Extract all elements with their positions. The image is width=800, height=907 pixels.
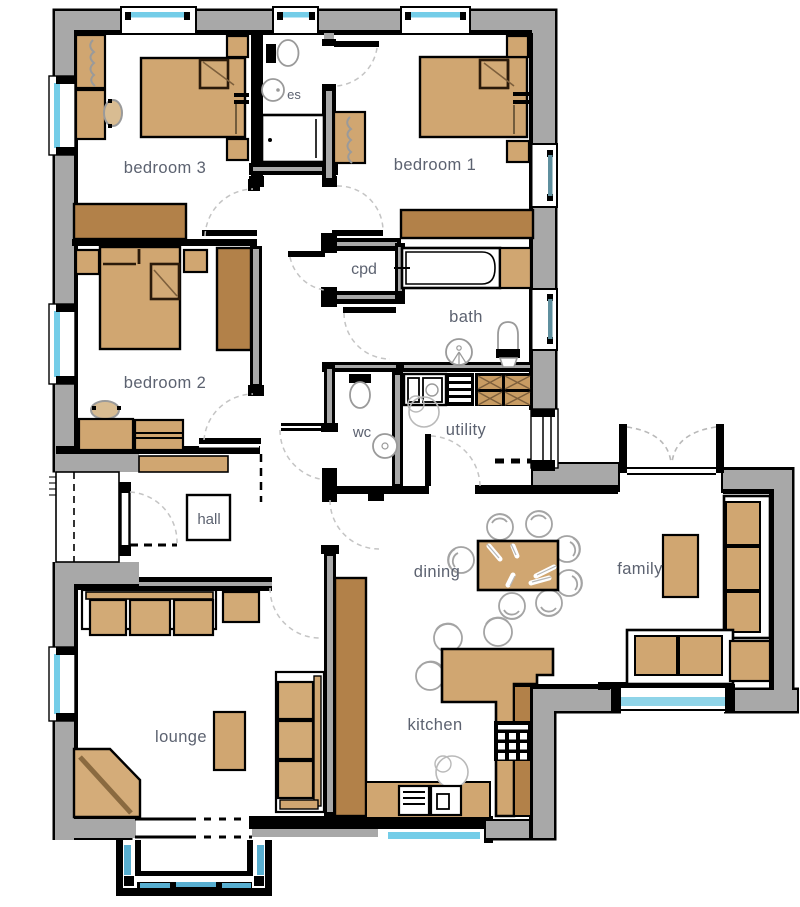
svg-text:kitchen: kitchen <box>407 716 462 734</box>
svg-text:bath: bath <box>449 308 483 326</box>
svg-text:wc: wc <box>352 424 372 441</box>
svg-text:dining: dining <box>414 563 460 581</box>
svg-text:bedroom 1: bedroom 1 <box>394 156 476 174</box>
svg-text:es: es <box>287 87 301 102</box>
svg-text:bedroom 2: bedroom 2 <box>124 374 206 392</box>
svg-text:bedroom 3: bedroom 3 <box>124 159 206 177</box>
svg-text:cpd: cpd <box>351 261 377 278</box>
svg-text:utility: utility <box>446 421 487 439</box>
svg-text:hall: hall <box>197 511 220 528</box>
svg-text:lounge: lounge <box>155 728 207 746</box>
svg-text:family: family <box>617 560 663 578</box>
